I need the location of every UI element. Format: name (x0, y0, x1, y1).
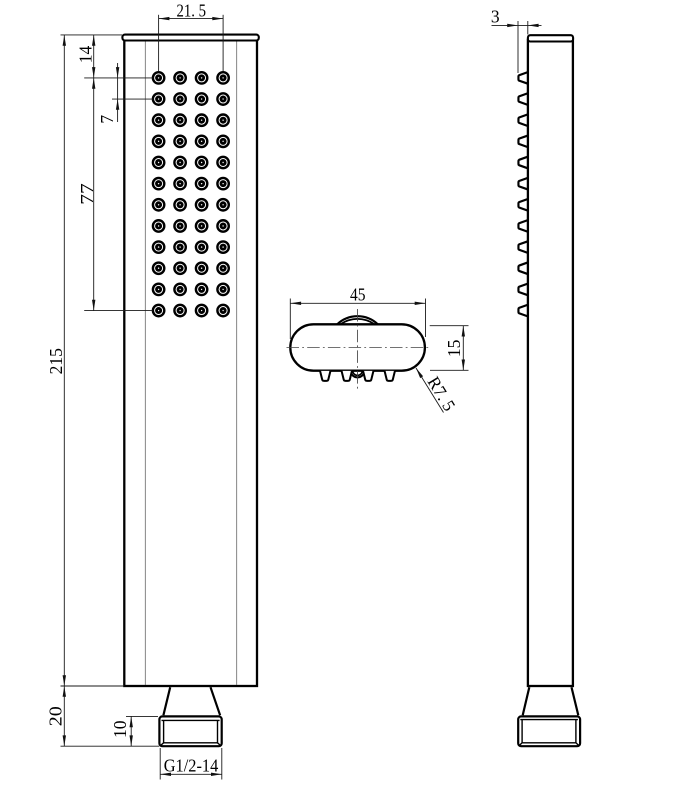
svg-text:14: 14 (75, 46, 95, 64)
svg-text:7: 7 (97, 115, 117, 124)
svg-text:10: 10 (110, 720, 130, 738)
svg-text:15: 15 (444, 339, 464, 357)
svg-text:R7. 5: R7. 5 (424, 373, 460, 415)
svg-text:G1/2-14: G1/2-14 (164, 755, 219, 775)
svg-text:77: 77 (77, 183, 97, 205)
svg-text:20: 20 (45, 706, 65, 726)
svg-text:3: 3 (491, 7, 500, 27)
svg-text:215: 215 (46, 348, 66, 375)
svg-text:45: 45 (350, 284, 366, 304)
svg-text:21. 5: 21. 5 (177, 0, 207, 20)
